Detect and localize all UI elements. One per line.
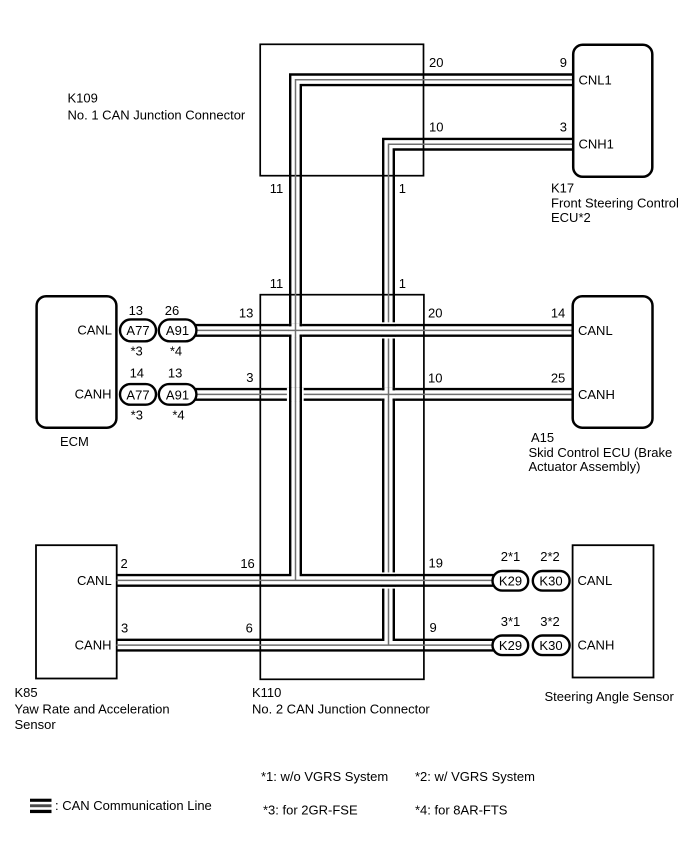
svg-text:20: 20: [428, 306, 442, 321]
svg-text:A91: A91: [166, 387, 189, 402]
svg-text:3: 3: [560, 119, 567, 134]
svg-text:14: 14: [551, 306, 565, 321]
svg-text:ECU*2: ECU*2: [551, 210, 591, 225]
svg-text:1: 1: [399, 181, 406, 196]
svg-text:3: 3: [246, 370, 253, 385]
svg-text:No. 2 CAN Junction Connector: No. 2 CAN Junction Connector: [252, 701, 430, 716]
svg-text:*4: for 8AR-FTS: *4: for 8AR-FTS: [415, 803, 508, 818]
svg-text:*1: w/o VGRS System: *1: w/o VGRS System: [261, 769, 388, 784]
svg-text:13: 13: [239, 306, 253, 321]
svg-text:*3: *3: [131, 408, 143, 423]
svg-text:10: 10: [429, 119, 443, 134]
svg-text:No. 1 CAN Junction Connector: No. 1 CAN Junction Connector: [68, 107, 246, 122]
svg-text:A77: A77: [126, 323, 149, 338]
svg-text:CANL: CANL: [77, 573, 112, 588]
svg-text:Steering Angle Sensor: Steering Angle Sensor: [545, 689, 675, 704]
svg-text:20: 20: [429, 55, 443, 70]
svg-text:CANH: CANH: [578, 387, 615, 402]
svg-text:CANH: CANH: [75, 387, 112, 402]
svg-text:Skid Control ECU (Brake: Skid Control ECU (Brake: [529, 445, 673, 460]
svg-text:K17: K17: [551, 181, 574, 196]
svg-text:K30: K30: [539, 638, 562, 653]
svg-text:CNL1: CNL1: [579, 72, 612, 87]
svg-text:CNH1: CNH1: [579, 137, 614, 152]
svg-text:CANL: CANL: [578, 573, 613, 588]
svg-text:A15: A15: [531, 430, 554, 445]
svg-text:*3: *3: [130, 344, 142, 359]
svg-text:CANH: CANH: [578, 638, 615, 653]
svg-text:2*2: 2*2: [540, 549, 560, 564]
svg-text:CANH: CANH: [75, 638, 112, 653]
svg-text:K85: K85: [15, 685, 38, 700]
svg-text:K109: K109: [68, 91, 98, 106]
svg-text:2: 2: [121, 556, 128, 571]
svg-text:Front Steering Control: Front Steering Control: [551, 195, 679, 210]
svg-text:CANL: CANL: [77, 323, 112, 338]
svg-text:11: 11: [270, 181, 284, 196]
svg-text:: CAN Communication Line: : CAN Communication Line: [55, 798, 212, 813]
svg-text:*4: *4: [172, 408, 184, 423]
svg-text:*3: for 2GR-FSE: *3: for 2GR-FSE: [263, 803, 358, 818]
svg-text:*4: *4: [170, 344, 182, 359]
svg-text:3: 3: [121, 621, 128, 636]
svg-text:K30: K30: [539, 573, 562, 588]
svg-text:6: 6: [246, 621, 253, 636]
svg-text:3*2: 3*2: [540, 614, 560, 629]
svg-text:13: 13: [168, 365, 182, 380]
svg-text:A77: A77: [126, 387, 149, 402]
svg-text:16: 16: [240, 556, 254, 571]
svg-text:10: 10: [428, 371, 442, 386]
svg-text:9: 9: [560, 55, 567, 70]
svg-text:13: 13: [129, 303, 143, 318]
svg-text:Yaw Rate and Acceleration: Yaw Rate and Acceleration: [15, 702, 170, 717]
svg-text:Actuator Assembly): Actuator Assembly): [529, 459, 641, 474]
svg-text:26: 26: [165, 303, 179, 318]
svg-text:11: 11: [270, 276, 284, 291]
svg-text:2*1: 2*1: [501, 549, 521, 564]
svg-text:*2: w/ VGRS System: *2: w/ VGRS System: [415, 769, 535, 784]
svg-text:CANL: CANL: [578, 323, 613, 338]
svg-text:A91: A91: [166, 323, 189, 338]
svg-text:14: 14: [130, 365, 144, 380]
svg-text:K29: K29: [499, 573, 522, 588]
svg-text:3*1: 3*1: [501, 614, 521, 629]
svg-text:25: 25: [551, 371, 565, 386]
svg-text:K110: K110: [252, 685, 281, 700]
svg-text:K29: K29: [499, 638, 522, 653]
svg-text:19: 19: [429, 555, 443, 570]
svg-text:9: 9: [430, 620, 437, 635]
svg-text:ECM: ECM: [60, 434, 89, 449]
svg-text:1: 1: [399, 276, 406, 291]
svg-text:Sensor: Sensor: [15, 717, 57, 732]
